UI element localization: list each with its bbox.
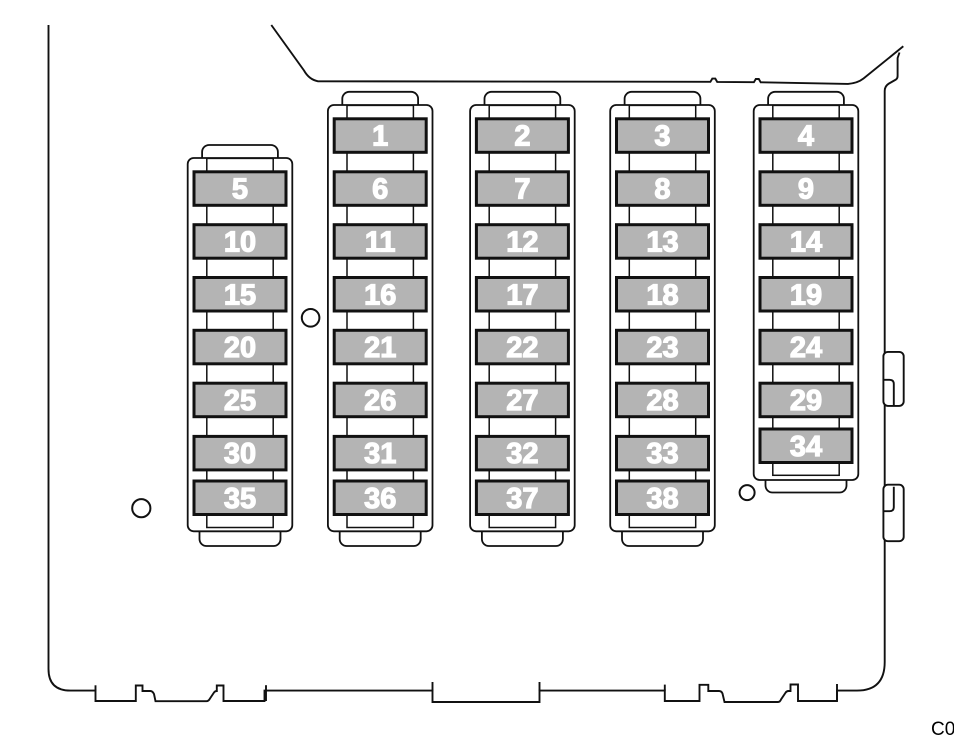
svg-text:20: 20 xyxy=(224,332,256,364)
svg-text:18: 18 xyxy=(646,279,678,311)
svg-text:29: 29 xyxy=(790,385,822,417)
svg-text:31: 31 xyxy=(364,438,396,470)
svg-text:25: 25 xyxy=(224,385,256,417)
svg-text:6: 6 xyxy=(372,174,388,206)
svg-text:11: 11 xyxy=(365,226,396,258)
svg-text:32: 32 xyxy=(506,438,538,470)
svg-text:17: 17 xyxy=(506,279,538,311)
svg-text:36: 36 xyxy=(364,483,396,515)
svg-text:38: 38 xyxy=(646,483,678,515)
svg-text:37: 37 xyxy=(506,483,538,515)
svg-text:26: 26 xyxy=(364,385,396,417)
svg-text:34: 34 xyxy=(790,431,822,463)
svg-text:4: 4 xyxy=(798,121,814,153)
svg-text:8: 8 xyxy=(654,174,670,206)
svg-text:7: 7 xyxy=(514,174,530,206)
svg-text:13: 13 xyxy=(646,226,678,258)
svg-text:23: 23 xyxy=(646,332,678,364)
svg-text:19: 19 xyxy=(790,279,822,311)
svg-text:14: 14 xyxy=(790,226,822,258)
svg-text:12: 12 xyxy=(506,226,538,258)
svg-text:24: 24 xyxy=(790,332,822,364)
svg-text:1: 1 xyxy=(372,121,388,153)
svg-text:3: 3 xyxy=(654,121,670,153)
svg-text:21: 21 xyxy=(364,332,396,364)
svg-text:5: 5 xyxy=(232,174,248,206)
svg-text:9: 9 xyxy=(798,174,814,206)
svg-text:35: 35 xyxy=(224,483,256,515)
svg-text:27: 27 xyxy=(506,385,538,417)
svg-text:2: 2 xyxy=(514,121,530,153)
svg-text:30: 30 xyxy=(224,438,256,470)
svg-text:15: 15 xyxy=(224,279,256,311)
svg-text:10: 10 xyxy=(224,226,256,258)
svg-text:28: 28 xyxy=(646,385,678,417)
svg-text:16: 16 xyxy=(364,279,396,311)
svg-text:C0: C0 xyxy=(931,719,954,737)
svg-text:33: 33 xyxy=(646,438,678,470)
svg-text:22: 22 xyxy=(506,332,538,364)
